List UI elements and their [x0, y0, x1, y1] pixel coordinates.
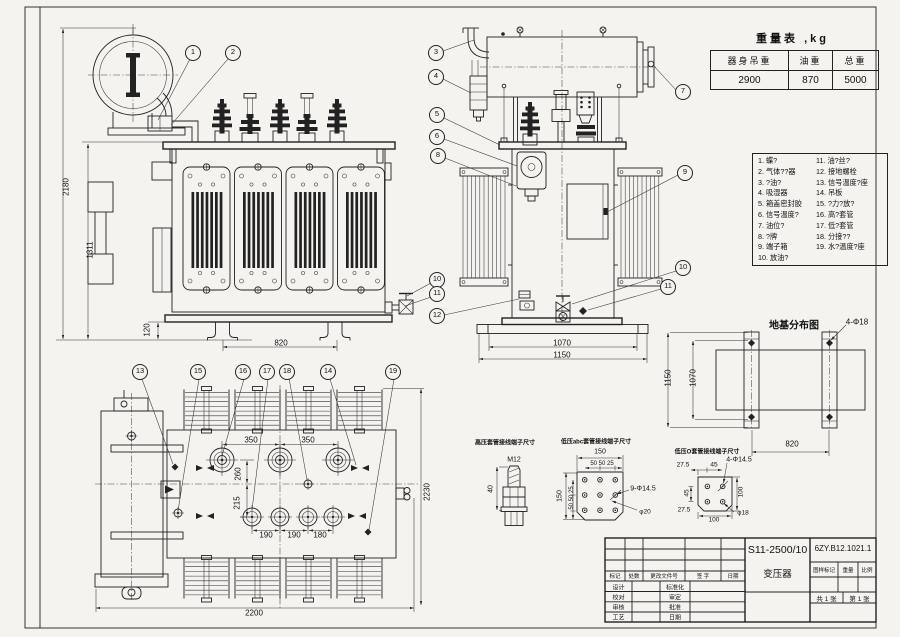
weight-value: 2900 [711, 71, 789, 90]
dim-label: 150 [557, 490, 564, 502]
dim-label: 2230 [423, 483, 432, 501]
dim-label: 350 [301, 436, 314, 445]
dim-label: 共 1 张 [816, 593, 836, 603]
dim-label: 27.5 [678, 507, 691, 514]
parts-list-item: 17. 低?套管 [816, 221, 868, 232]
parts-list-right-column: 11. 油?丝?12. 接地螺栓13. 信号温度?座14. 吊板15. ?力?放… [816, 156, 868, 265]
detail-title-lv-o-terminal: 低压O套管接线端子尺寸 [675, 447, 740, 456]
weight-table-grid: 器身吊重 油重 总重 2900 870 5000 [710, 50, 879, 90]
parts-list: 1. 蝶?2. 气体??器3. ?油?4. 吸湿器5. 箱盖密封胶6. 信号温度… [752, 153, 888, 266]
dim-label: 45 [684, 489, 691, 496]
dim-label: 820 [274, 339, 287, 348]
dim-label: 215 [233, 496, 242, 509]
callout-balloon-4: 4 [428, 69, 444, 85]
title-block-product: 变压器 [745, 566, 810, 580]
dim-label: 校对 [612, 592, 624, 601]
parts-list-item: 12. 接地螺栓 [816, 167, 868, 178]
plan-view [95, 385, 420, 608]
weight-table: 重量表 ,kg 器身吊重 油重 总重 2900 870 5000 [710, 29, 875, 90]
parts-list-item: 4. 吸湿器 [758, 188, 816, 199]
dim-label: 9-Φ14.5 [630, 486, 655, 493]
callout-balloon-10: 10 [675, 260, 691, 276]
dim-label: 190 [259, 531, 272, 540]
drawing-linework [0, 0, 900, 637]
detail-title-lv-abc-terminal: 低压abc套管接线端子尺寸 [561, 437, 631, 446]
dim-label: 1150 [553, 351, 570, 360]
dim-label: 2200 [245, 609, 263, 618]
parts-list-item: 5. 箱盖密封胶 [758, 199, 816, 210]
callout-balloon-8: 8 [430, 148, 446, 164]
drawing-sheet: 2180131112082010701150350350260215190190… [0, 0, 900, 637]
callout-balloon-5: 5 [429, 107, 445, 123]
dim-label: 50 50 25 [569, 486, 575, 509]
dim-label: 图样标记 [813, 566, 835, 574]
dim-label: 27.5 [677, 462, 690, 469]
sheet-border [25, 7, 876, 628]
dim-label: 150 [594, 449, 606, 456]
dim-label: 120 [143, 323, 152, 336]
dim-label: 820 [785, 440, 798, 449]
parts-list-left-column: 1. 蝶?2. 气体??器3. ?油?4. 吸湿器5. 箱盖密封胶6. 信号温度… [758, 156, 816, 265]
dim-label: 1311 [86, 241, 95, 258]
callout-balloon-6: 6 [429, 129, 445, 145]
detail-title-hv-terminal: 高压套管接线端子尺寸 [475, 438, 535, 447]
parts-list-item: 3. ?油? [758, 178, 816, 189]
dim-label: 签 字 [697, 572, 710, 580]
callout-balloon-15: 15 [190, 364, 206, 380]
parts-list-item: 9. 端子箱 [758, 242, 816, 253]
weight-value: 5000 [833, 71, 879, 90]
dim-label: 工艺 [612, 613, 624, 622]
parts-list-item: 10. 放油? [758, 253, 816, 264]
dim-label: 处数 [628, 572, 639, 580]
callout-balloon-1: 1 [185, 45, 201, 61]
parts-list-item: 16. 高?套管 [816, 210, 868, 221]
dim-label: 日期 [669, 613, 681, 622]
parts-list-item: 2. 气体??器 [758, 167, 816, 178]
parts-list-item: 19. 水?温度?座 [816, 242, 868, 253]
dim-label: 重量 [842, 566, 853, 574]
dim-label: 180 [313, 531, 326, 540]
weight-value: 870 [789, 71, 833, 90]
dim-label: 更改文件号 [650, 572, 678, 580]
title-block-model: S11-2500/10 [745, 544, 810, 556]
dim-label: 100 [709, 517, 720, 524]
parts-list-item: 8. ?牌 [758, 232, 816, 243]
dim-label: 45 [710, 462, 717, 469]
callout-balloon-19: 19 [385, 364, 401, 380]
parts-list-item: 11. 油?丝? [816, 156, 868, 167]
dim-label: 标准化 [666, 582, 684, 591]
dim-label: 4-Φ18 [846, 318, 868, 327]
callout-balloon-9: 9 [677, 165, 693, 181]
dim-label: 190 [287, 531, 300, 540]
weight-col-header: 油重 [789, 51, 833, 71]
dim-label: 1070 [553, 339, 571, 348]
side-view [460, 27, 662, 334]
callout-balloon-11: 11 [660, 279, 676, 295]
parts-list-item: 6. 信号温度? [758, 210, 816, 221]
parts-list-item: 14. 吊板 [816, 188, 868, 199]
dim-label: 设计 [612, 582, 624, 591]
dim-label: 350 [244, 436, 257, 445]
callout-balloon-18: 18 [279, 364, 295, 380]
callout-balloon-14: 14 [320, 364, 336, 380]
parts-list-item: 15. ?力?放? [816, 199, 868, 210]
weight-col-header: 总重 [833, 51, 879, 71]
dim-label: 40 [488, 485, 495, 493]
dim-label: 1150 [664, 369, 673, 386]
parts-list-item: 13. 信号温度?座 [816, 178, 868, 189]
weight-col-header: 器身吊重 [711, 51, 789, 71]
callout-balloon-17: 17 [259, 364, 275, 380]
terminal-details [501, 466, 732, 526]
dim-label: 1070 [689, 369, 698, 387]
dim-label: 100 [738, 487, 745, 498]
front-view [88, 28, 413, 341]
dim-label: φ20 [639, 509, 650, 516]
dim-label: 第 1 张 [849, 593, 869, 603]
callout-balloon-13: 13 [132, 364, 148, 380]
dim-label: φ18 [737, 510, 748, 517]
dim-label: 50 50 25 [590, 461, 613, 467]
dim-label: 审定 [669, 592, 681, 601]
dim-label: 4-Φ14.5 [726, 457, 751, 464]
callout-balloon-7: 7 [675, 84, 691, 100]
dim-label: 标记 [609, 572, 620, 580]
dim-label: 比例 [861, 566, 872, 574]
dim-label: 日期 [727, 572, 738, 580]
dim-label: 260 [234, 467, 243, 480]
foundation-plan-title: 地基分布图 [769, 317, 819, 332]
parts-list-item: 1. 蝶? [758, 156, 816, 167]
foundation-plan [716, 330, 865, 430]
dim-label: 批准 [669, 603, 681, 612]
callout-balloon-3: 3 [428, 45, 444, 61]
dim-label: 审核 [612, 603, 624, 612]
parts-list-item: 18. 分接?? [816, 232, 868, 243]
parts-list-item: 7. 油位? [758, 221, 816, 232]
dim-label: M12 [507, 457, 521, 464]
callout-balloon-16: 16 [235, 364, 251, 380]
weight-table-title: 重量表 ,kg [710, 29, 875, 50]
callout-balloon-2: 2 [225, 45, 241, 61]
dim-label: 2180 [62, 178, 71, 196]
callout-balloon-11: 11 [429, 286, 445, 302]
title-block-drawing-number: 6ZY.B12.1021.1 [810, 544, 876, 553]
callout-balloon-12: 12 [429, 308, 445, 324]
